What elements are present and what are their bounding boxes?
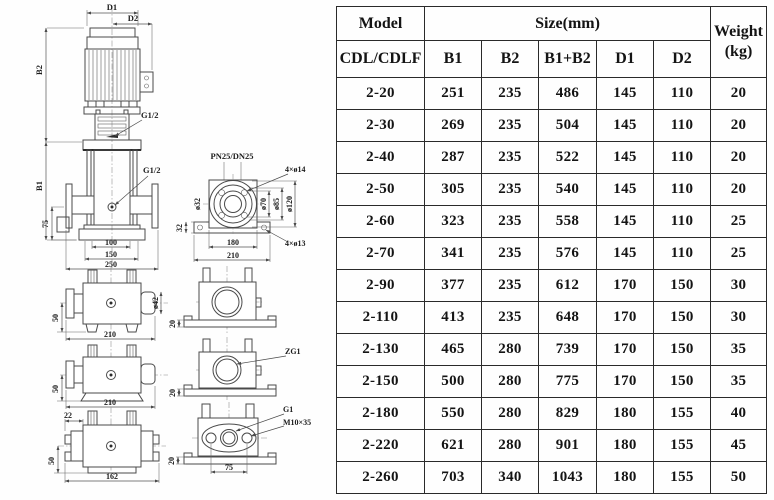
cell-b1: 703 — [425, 462, 482, 494]
drain-thread-label: G1/2 — [143, 165, 160, 175]
header-b2: B2 — [482, 41, 539, 78]
dim-label-dia42: ø42 — [151, 297, 160, 309]
cell-d2: 155 — [654, 398, 711, 430]
header-weight-line2: (kg) — [711, 42, 766, 62]
bolt-label-m10: M10×35 — [283, 418, 311, 427]
table-row: 2-150 500 280 775 170 150 35 — [337, 366, 767, 398]
cell-b2: 235 — [482, 142, 539, 174]
cell-model: 2-90 — [337, 270, 425, 302]
bolt-holes-bottom-label: 4×ø13 — [285, 239, 306, 248]
vent-thread-label: G1/2 — [141, 110, 158, 120]
pump-drawings-panel: D1 D2 B2 B1 G1/2 G1/2 75 — [0, 0, 335, 500]
bolt-holes-top-label: 4×ø14 — [285, 165, 306, 174]
page: D1 D2 B2 B1 G1/2 G1/2 75 — [0, 0, 774, 500]
cell-weight: 20 — [711, 174, 767, 206]
flange-title-label: PN25/DN25 — [211, 151, 254, 161]
cell-b1b2: 739 — [539, 334, 597, 366]
cell-d1: 170 — [597, 302, 654, 334]
cell-b2: 235 — [482, 238, 539, 270]
table-row: 2-30 269 235 504 145 110 20 — [337, 110, 767, 142]
dim-label-50a: 50 — [51, 314, 60, 322]
dim-label-180: 180 — [227, 238, 239, 247]
cell-weight: 35 — [711, 366, 767, 398]
cell-b1: 465 — [425, 334, 482, 366]
flange-plan-drawing: PN25/DN25 ø3 — [175, 151, 306, 262]
cell-model: 2-260 — [337, 462, 425, 494]
cell-b1b2: 775 — [539, 366, 597, 398]
table-row: 2-20 251 235 486 145 110 20 — [337, 78, 767, 110]
pump-elevation-drawing: D1 D2 B2 B1 G1/2 G1/2 75 — [34, 2, 160, 270]
base-end-view-1: 20 — [168, 266, 276, 333]
table-row: 2-50 305 235 540 145 110 20 — [337, 174, 767, 206]
cell-b1: 251 — [425, 78, 482, 110]
cell-weight: 20 — [711, 110, 767, 142]
cell-weight: 35 — [711, 334, 767, 366]
cell-d1: 145 — [597, 110, 654, 142]
cell-d2: 110 — [654, 110, 711, 142]
terminal-box — [140, 72, 153, 92]
cell-d1: 170 — [597, 334, 654, 366]
cell-b1: 269 — [425, 110, 482, 142]
cell-b2: 235 — [482, 174, 539, 206]
base-side-view-1: ø42 50 210 — [51, 266, 168, 341]
dim-label-50c: 50 — [47, 457, 56, 465]
cell-d1: 170 — [597, 270, 654, 302]
table-row: 2-110 413 235 648 170 150 30 — [337, 302, 767, 334]
cell-d1: 180 — [597, 398, 654, 430]
cell-model: 2-50 — [337, 174, 425, 206]
table-row: 2-130 465 280 739 170 150 35 — [337, 334, 767, 366]
cell-b1b2: 901 — [539, 430, 597, 462]
cell-model: 2-60 — [337, 206, 425, 238]
cell-d2: 150 — [654, 334, 711, 366]
table-row: 2-60 323 235 558 145 110 25 — [337, 206, 767, 238]
table-row: 2-90 377 235 612 170 150 30 — [337, 270, 767, 302]
cell-d1: 180 — [597, 462, 654, 494]
cell-weight: 45 — [711, 430, 767, 462]
cell-b2: 235 — [482, 302, 539, 334]
dim-label-dia120: ø120 — [285, 196, 294, 212]
dim-label-d2: D2 — [128, 13, 138, 23]
thread-label-g1: G1 — [283, 405, 293, 414]
cell-b2: 235 — [482, 206, 539, 238]
cell-b2: 280 — [482, 430, 539, 462]
cell-d1: 180 — [597, 430, 654, 462]
cell-model: 2-40 — [337, 142, 425, 174]
cell-b1b2: 540 — [539, 174, 597, 206]
dim-label-dia32: ø32 — [193, 198, 202, 210]
base-end-view-2: ZG1 20 — [168, 337, 301, 400]
cell-d2: 150 — [654, 366, 711, 398]
cell-b1: 621 — [425, 430, 482, 462]
base-end-view-3: G1 M10×35 20 75 — [167, 402, 311, 474]
cell-b2: 235 — [482, 110, 539, 142]
table-row: 2-40 287 235 522 145 110 20 — [337, 142, 767, 174]
cell-b2: 235 — [482, 78, 539, 110]
cell-b2: 340 — [482, 462, 539, 494]
cell-b1b2: 486 — [539, 78, 597, 110]
cell-b1: 550 — [425, 398, 482, 430]
base-side-view-3: 22 50 162 — [47, 407, 166, 483]
header-d1: D1 — [597, 41, 654, 78]
cell-model: 2-20 — [337, 78, 425, 110]
table-row: 2-220 621 280 901 180 155 45 — [337, 430, 767, 462]
cell-d1: 145 — [597, 142, 654, 174]
header-size-group: Size(mm) — [425, 7, 711, 41]
cell-d1: 145 — [597, 78, 654, 110]
cell-model: 2-220 — [337, 430, 425, 462]
cell-d2: 155 — [654, 462, 711, 494]
header-weight: Weight (kg) — [711, 7, 767, 78]
dim-label-d1: D1 — [107, 2, 117, 12]
cell-d1: 145 — [597, 174, 654, 206]
cell-d1: 170 — [597, 366, 654, 398]
table-row: 2-70 341 235 576 145 110 25 — [337, 238, 767, 270]
dim-label-210b: 210 — [104, 398, 116, 407]
cell-b1b2: 1043 — [539, 462, 597, 494]
cell-b1: 377 — [425, 270, 482, 302]
cell-weight: 30 — [711, 270, 767, 302]
dim-label-50b: 50 — [51, 385, 60, 393]
dim-label-150: 150 — [105, 250, 117, 259]
cell-d2: 150 — [654, 270, 711, 302]
dim-label-b2: B2 — [34, 65, 44, 75]
cell-b1b2: 576 — [539, 238, 597, 270]
cell-weight: 25 — [711, 238, 767, 270]
cell-b2: 235 — [482, 270, 539, 302]
cell-b1b2: 612 — [539, 270, 597, 302]
cell-model: 2-70 — [337, 238, 425, 270]
dim-label-210f: 210 — [227, 251, 239, 260]
cell-model: 2-180 — [337, 398, 425, 430]
cell-weight: 50 — [711, 462, 767, 494]
cell-d1: 145 — [597, 238, 654, 270]
header-d2: D2 — [654, 41, 711, 78]
cell-d2: 110 — [654, 142, 711, 174]
cell-b1: 287 — [425, 142, 482, 174]
cell-b1: 413 — [425, 302, 482, 334]
cell-model: 2-150 — [337, 366, 425, 398]
cell-model: 2-30 — [337, 110, 425, 142]
cell-b2: 280 — [482, 366, 539, 398]
cell-b1b2: 522 — [539, 142, 597, 174]
cell-model: 2-130 — [337, 334, 425, 366]
cell-b1b2: 829 — [539, 398, 597, 430]
dim-label-20b: 20 — [168, 389, 177, 397]
cell-d2: 110 — [654, 206, 711, 238]
thread-label-zg1: ZG1 — [285, 347, 301, 356]
dim-label-dia70: ø70 — [259, 198, 268, 210]
header-b1: B1 — [425, 41, 482, 78]
cell-b1b2: 558 — [539, 206, 597, 238]
header-weight-line1: Weight — [711, 22, 766, 42]
dimensions-table-panel: Model Size(mm) Weight (kg) CDL/CDLF B1 B… — [336, 6, 766, 494]
cell-b1: 323 — [425, 206, 482, 238]
table-row: 2-180 550 280 829 180 155 40 — [337, 398, 767, 430]
dim-label-20a: 20 — [168, 320, 177, 328]
cell-weight: 20 — [711, 78, 767, 110]
header-model: Model — [337, 7, 425, 41]
cell-d2: 155 — [654, 430, 711, 462]
cell-weight: 40 — [711, 398, 767, 430]
cell-b1: 500 — [425, 366, 482, 398]
header-b1b2: B1+B2 — [539, 41, 597, 78]
dim-label-100: 100 — [105, 238, 117, 247]
header-model-sub: CDL/CDLF — [337, 41, 425, 78]
cell-b1: 341 — [425, 238, 482, 270]
base-side-view-2: 50 210 — [51, 341, 168, 409]
cell-weight: 25 — [711, 206, 767, 238]
table-row: 2-260 703 340 1043 180 155 50 — [337, 462, 767, 494]
cell-d2: 110 — [654, 238, 711, 270]
cell-d1: 145 — [597, 206, 654, 238]
cell-b2: 280 — [482, 398, 539, 430]
dim-label-20c: 20 — [167, 457, 176, 465]
cell-d2: 110 — [654, 78, 711, 110]
dim-label-75b: 75 — [225, 463, 233, 472]
dim-label-162: 162 — [106, 472, 118, 481]
dim-label-32: 32 — [175, 224, 184, 232]
cell-weight: 20 — [711, 142, 767, 174]
dim-label-210a: 210 — [104, 330, 116, 339]
dim-label-75: 75 — [41, 220, 50, 228]
pump-drawings-svg: D1 D2 B2 B1 G1/2 G1/2 75 — [0, 0, 335, 500]
cell-weight: 30 — [711, 302, 767, 334]
cell-model: 2-110 — [337, 302, 425, 334]
dimensions-table: Model Size(mm) Weight (kg) CDL/CDLF B1 B… — [336, 6, 767, 494]
cell-b1: 305 — [425, 174, 482, 206]
cell-b2: 280 — [482, 334, 539, 366]
dim-label-b1: B1 — [34, 181, 44, 191]
cell-d2: 150 — [654, 302, 711, 334]
cell-b1b2: 648 — [539, 302, 597, 334]
dim-label-22: 22 — [64, 411, 72, 420]
dim-label-dia85: ø85 — [272, 198, 281, 210]
cell-b1b2: 504 — [539, 110, 597, 142]
cell-d2: 110 — [654, 174, 711, 206]
